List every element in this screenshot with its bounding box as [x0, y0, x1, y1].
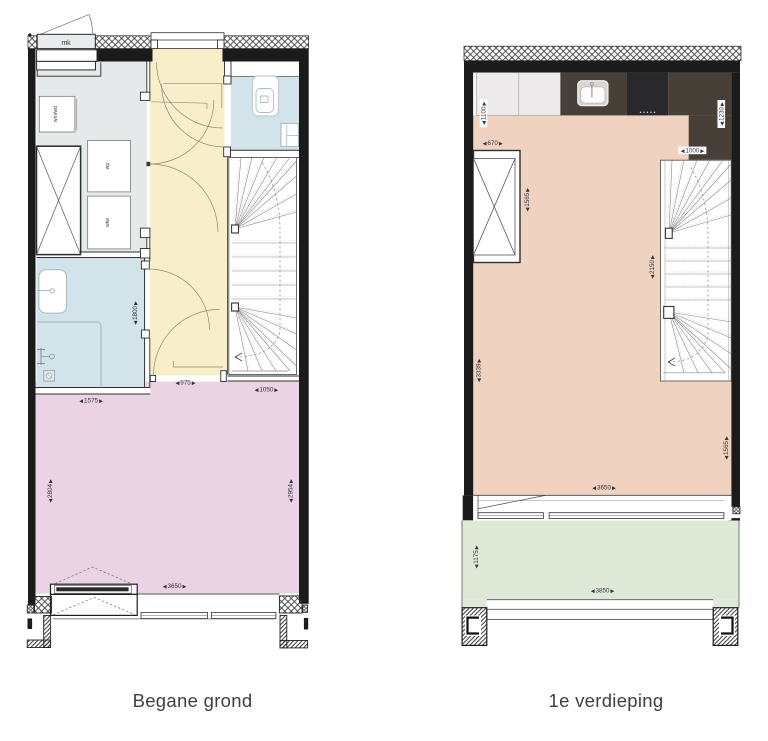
svg-text:mk: mk: [61, 40, 71, 47]
svg-text:◀ 1575 ▶: ◀ 1575 ▶: [79, 398, 103, 405]
svg-text:◀ 670 ▶: ◀ 670 ▶: [483, 140, 503, 147]
svg-text:wm/wd: wm/wd: [53, 106, 59, 122]
svg-text:◀ 2804 ▶: ◀ 2804 ▶: [47, 479, 54, 503]
svg-text:◀ 975 ▶: ◀ 975 ▶: [175, 380, 195, 387]
svg-text:◀ 3650 ▶: ◀ 3650 ▶: [592, 485, 616, 492]
svg-text:1e verdieping: 1e verdieping: [549, 690, 664, 711]
svg-text:wtw: wtw: [105, 218, 111, 227]
svg-text:◀ 1565 ▶: ◀ 1565 ▶: [524, 188, 531, 212]
svg-text:wp: wp: [105, 163, 111, 170]
svg-text:◀ 1050 ▶: ◀ 1050 ▶: [255, 387, 279, 394]
svg-text:◀ 3650 ▶: ◀ 3650 ▶: [163, 583, 187, 590]
svg-text:◀ 3850 ▶: ◀ 3850 ▶: [591, 588, 615, 595]
svg-text:◀ 2954 ▶: ◀ 2954 ▶: [288, 479, 295, 503]
svg-text:◀ 1000 ▶: ◀ 1000 ▶: [681, 148, 705, 155]
svg-text:◀ 3339 ▶: ◀ 3339 ▶: [476, 359, 483, 383]
svg-text:◀ 1800 ▶: ◀ 1800 ▶: [132, 301, 139, 325]
svg-text:◀ 1175 ▶: ◀ 1175 ▶: [473, 545, 480, 568]
svg-text:◀ 2150 ▶: ◀ 2150 ▶: [649, 255, 656, 279]
svg-text:◀ 1230 ▶: ◀ 1230 ▶: [719, 102, 726, 126]
svg-text:◀ 1100 ▶: ◀ 1100 ▶: [481, 102, 488, 125]
svg-text:◀ 1565 ▶: ◀ 1565 ▶: [723, 436, 730, 460]
svg-text:Begane grond: Begane grond: [133, 690, 253, 711]
